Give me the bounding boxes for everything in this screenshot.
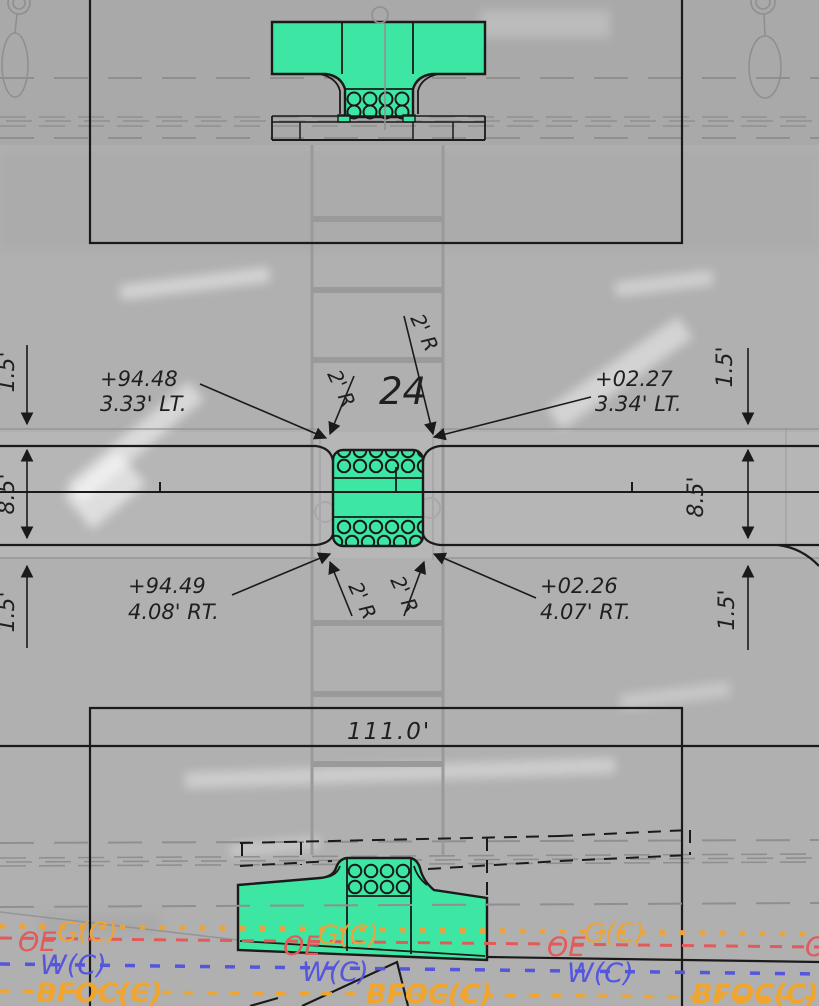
median-island [330, 445, 430, 548]
dim-left-top: 1.5' [0, 351, 20, 392]
fiber-label: BFOC(C) [36, 978, 162, 1006]
svg-text:+94.48: +94.48 [100, 367, 178, 391]
dim-left-mid: 8.5' [0, 473, 20, 514]
svg-text:+02.26: +02.26 [540, 574, 618, 598]
crossing-number: 24 [379, 370, 426, 413]
dim-left-bottom: 1.5' [0, 591, 20, 632]
gas-label: G(C) [584, 918, 645, 949]
fiber-label: BFOC(C) [692, 979, 818, 1006]
gas-label: G(C) [57, 917, 118, 948]
svg-text:+02.27: +02.27 [595, 367, 673, 391]
dim-right-top: 1.5' [713, 346, 738, 387]
gas-label: G(C) [318, 920, 379, 951]
water-label: W(C) [40, 950, 107, 981]
svg-text:3.34' LT.: 3.34' LT. [595, 392, 682, 416]
plan-drawing: 1.5' 8.5' 1.5' 1.5' 8.5' 1.5' +94.48 3.3… [0, 0, 819, 1006]
dim-right-bottom: 1.5' [715, 589, 740, 630]
svg-text:4.07' RT.: 4.07' RT. [540, 600, 631, 624]
fiber-label: BFOC(C) [366, 979, 492, 1006]
dim-right-mid: 8.5' [684, 476, 709, 517]
svg-text:4.08' RT.: 4.08' RT. [128, 600, 219, 624]
svg-text:+94.49: +94.49 [128, 574, 206, 598]
svg-text:3.33' LT.: 3.33' LT. [100, 392, 187, 416]
water-label: W(C) [567, 958, 634, 989]
water-label: W(C) [302, 957, 369, 988]
oe-label: OE [805, 932, 819, 963]
length-label: 111.0' [347, 719, 431, 745]
